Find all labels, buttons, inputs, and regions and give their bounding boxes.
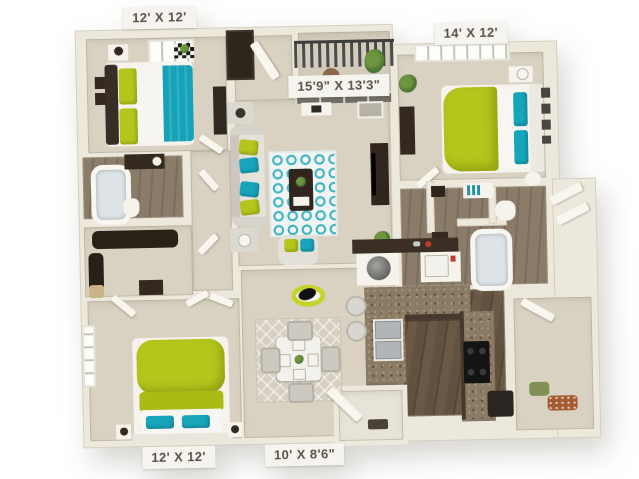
bathtub <box>470 228 513 291</box>
armchair-pillow <box>284 239 298 252</box>
bedroom-window <box>414 42 510 62</box>
refrigerator <box>487 390 514 417</box>
sofa-arm <box>230 126 264 136</box>
entry-wardrobe <box>226 30 255 81</box>
bed-teal-pillow <box>118 68 137 104</box>
dining-chair <box>260 347 281 373</box>
tv-screen <box>371 153 376 195</box>
kitchen-sink <box>373 339 403 362</box>
bed-green-right-pillow <box>513 92 528 126</box>
kettle <box>425 241 431 247</box>
bedroom-dresser <box>399 106 415 154</box>
bed-green-right-pillow <box>514 130 529 164</box>
dimension-label-dining-area: 10' X 8'6" <box>265 443 345 466</box>
detergent <box>450 256 455 262</box>
hall-door <box>357 101 383 119</box>
dimension-label-living-room: 15'9" X 13'3" <box>288 74 389 98</box>
floorplan-image: 12' X 12' 14' X 12' 15'9" X 13'3" 12' X … <box>0 0 639 479</box>
sofa-pillow <box>240 199 261 216</box>
bed-teal-sheet <box>136 66 164 143</box>
wall-frames <box>541 88 551 144</box>
laundry-basket <box>89 285 104 298</box>
bed-green-bottom-duvet <box>136 338 225 394</box>
dimension-label-bedroom-top-left: 12' X 12' <box>123 6 196 29</box>
wall-frame-icon <box>95 93 105 105</box>
interior-wall <box>458 219 506 226</box>
sofa-pillow <box>239 181 259 198</box>
washer <box>424 255 448 277</box>
floorplan: 12' X 12' 14' X 12' 15'9" X 13'3" 12' X … <box>76 21 605 448</box>
place-setting <box>280 354 291 367</box>
wall-frame-icon <box>95 77 105 89</box>
bathtub <box>91 164 132 225</box>
hall-cabinet <box>213 86 227 134</box>
pot <box>413 241 420 246</box>
serving-tray <box>293 197 309 206</box>
sofa-pillow <box>239 157 260 174</box>
bed-teal-headboard <box>104 65 119 145</box>
pet-toy-mat <box>547 395 577 411</box>
dining-chair <box>287 321 313 342</box>
desk-books <box>467 185 481 195</box>
laundry-nook-floor <box>333 385 408 447</box>
dining-chair <box>288 383 314 404</box>
storage-item <box>368 419 388 429</box>
place-setting <box>307 353 318 366</box>
sofa-arm <box>232 217 266 227</box>
bed-green-bottom-pillow <box>146 416 174 430</box>
hallway-left-floor <box>190 150 233 291</box>
bed-teal-pillow <box>119 108 138 144</box>
dimension-label-bedroom-top-right: 14' X 12' <box>434 21 507 44</box>
armchair-pillow <box>300 239 314 252</box>
toilet <box>123 198 139 217</box>
place-setting <box>293 369 306 380</box>
toilet <box>495 200 515 220</box>
closet-dresser <box>139 280 163 295</box>
media-cabinet-screen <box>311 105 321 112</box>
stove <box>463 341 490 384</box>
dining-chair <box>320 346 341 372</box>
hanging-clothes <box>92 229 178 249</box>
bed-green-bottom-pillow <box>182 415 210 429</box>
dimension-label-bedroom-bottom-left: 12' X 12' <box>142 446 215 469</box>
sewing-machine <box>431 186 445 197</box>
floor-cushion <box>529 382 549 396</box>
bed-green-right-duvet <box>443 87 499 172</box>
place-setting <box>292 340 305 351</box>
bedroom-window <box>82 325 96 387</box>
bed-teal-duvet <box>162 65 194 142</box>
sofa-pillow <box>239 139 259 156</box>
